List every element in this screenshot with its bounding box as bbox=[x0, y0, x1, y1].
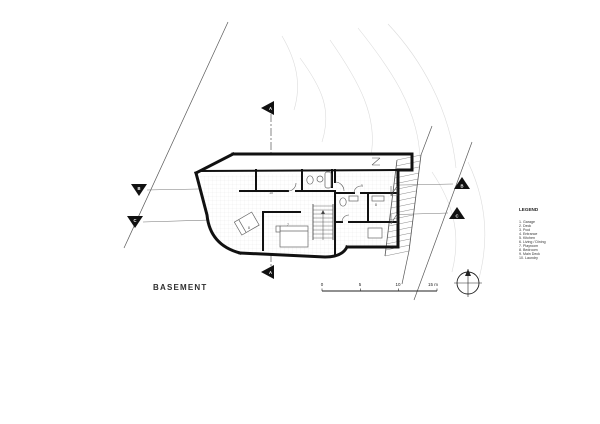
scale-label-5: 5 bbox=[359, 282, 362, 287]
toilet-icon bbox=[340, 198, 346, 206]
legend: LEGEND 1. Garage 2. Deck 3. Pool 4. Entr… bbox=[519, 207, 546, 260]
room-label: 10 bbox=[269, 191, 273, 195]
section-letter-a-bottom: A bbox=[269, 270, 272, 275]
section-marker-a-top bbox=[261, 101, 274, 115]
sink-icon bbox=[317, 176, 323, 182]
architectural-sheet: A A B B C C bbox=[0, 0, 600, 424]
room-label: 8 bbox=[248, 226, 250, 230]
scale-label-0: 0 bbox=[321, 282, 324, 287]
section-marker-a-bottom bbox=[261, 265, 274, 279]
scale-bar: 0 5 10 15 m bbox=[321, 282, 439, 291]
scale-label-15m: 15 m bbox=[428, 282, 438, 287]
section-letter-b-right: B bbox=[460, 184, 463, 189]
section-letter-b-left: B bbox=[137, 186, 140, 191]
room-label: 7 bbox=[287, 223, 289, 227]
section-letter-a-top: A bbox=[269, 106, 272, 111]
sink-counter bbox=[349, 196, 358, 201]
closet bbox=[372, 196, 384, 201]
room-label: 8 bbox=[375, 203, 377, 207]
tub-icon bbox=[325, 172, 331, 188]
drawing-title: BASEMENT bbox=[153, 283, 208, 292]
north-arrow-icon bbox=[454, 269, 482, 297]
legend-item: 10. Laundry bbox=[519, 256, 538, 260]
room-label: 9 bbox=[361, 184, 363, 188]
section-letter-c-right: C bbox=[455, 214, 458, 219]
scale-label-10: 10 bbox=[395, 282, 401, 287]
legend-title: LEGEND bbox=[519, 207, 539, 212]
floorplan-canvas: A A B B C C bbox=[0, 0, 600, 424]
toilet-icon bbox=[307, 176, 313, 184]
section-letter-c-left: C bbox=[133, 218, 136, 223]
